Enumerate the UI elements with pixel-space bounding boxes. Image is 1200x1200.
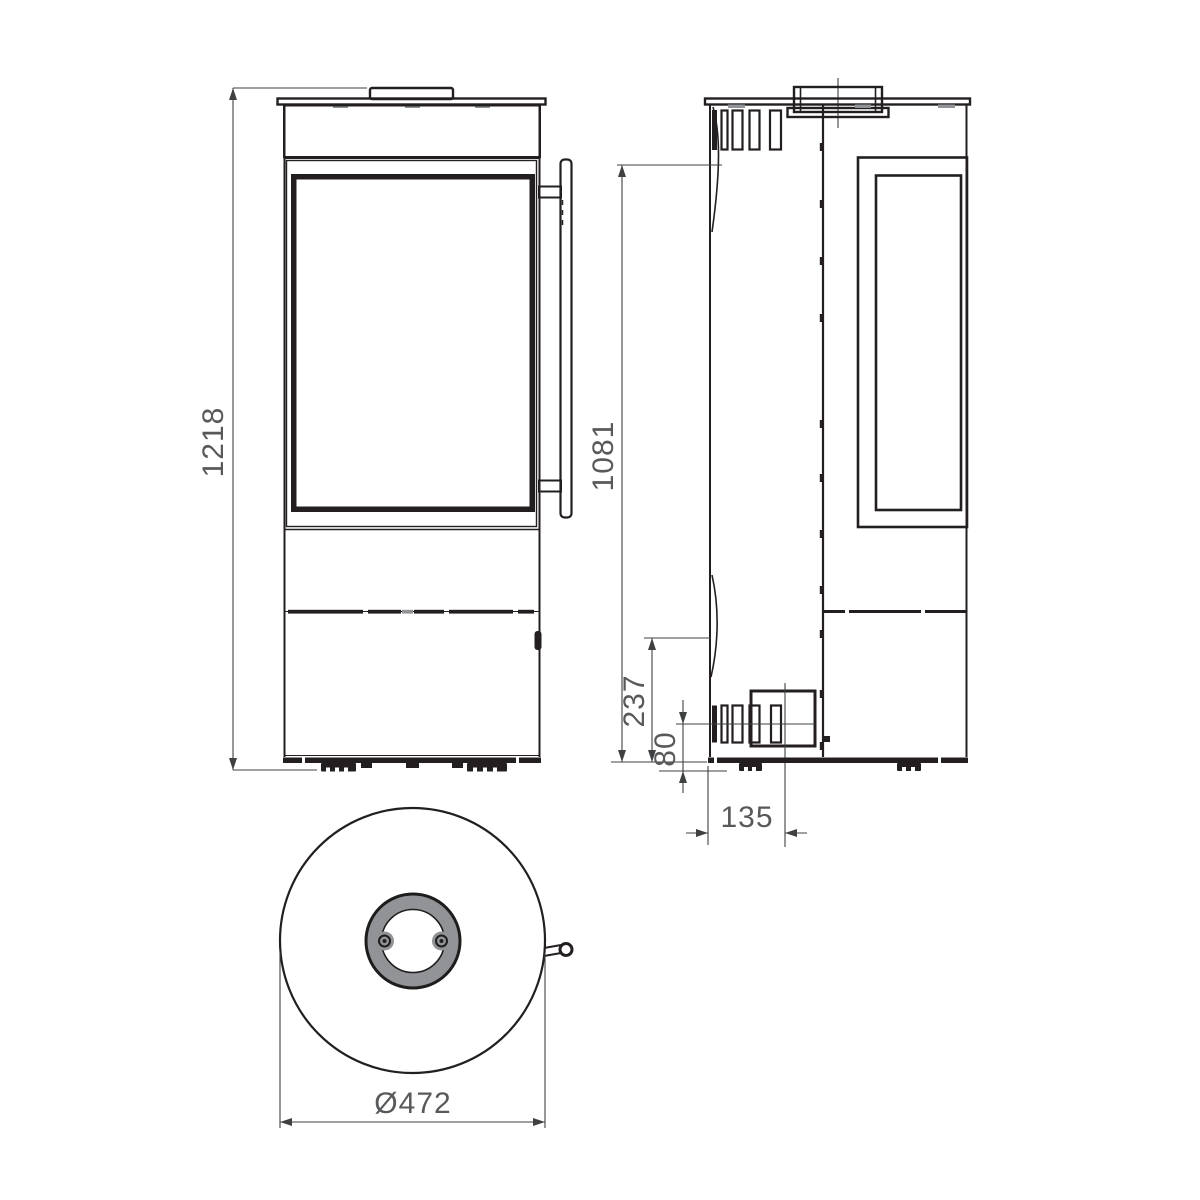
side-window-outer-frame	[858, 158, 967, 528]
label-base-height: 80	[649, 731, 682, 766]
top-view	[280, 808, 572, 1073]
side-window-inner-frame	[876, 176, 961, 511]
front-mid-seam	[284, 610, 540, 614]
side-top-vents	[712, 110, 781, 150]
label-rear-height: 1081	[587, 421, 620, 492]
side-feet	[739, 763, 921, 771]
front-top-band	[284, 106, 540, 158]
label-lower-height: 237	[618, 674, 651, 727]
front-top-plate	[278, 99, 546, 105]
dimension-rear-offset: 135	[686, 766, 807, 845]
front-glass	[297, 180, 530, 507]
label-diameter: Ø472	[374, 1087, 451, 1120]
front-view	[278, 88, 572, 772]
side-front-curve-bottom	[711, 575, 717, 677]
side-view	[676, 78, 970, 847]
technical-drawing: 1218	[0, 0, 1200, 1200]
side-door-seam	[820, 105, 824, 757]
dimension-rear-height: 1081	[587, 165, 722, 762]
front-base-band	[283, 758, 541, 764]
side-base-band	[708, 758, 968, 764]
label-rear-offset: 135	[720, 801, 773, 834]
front-handle-standoff-top	[539, 187, 561, 198]
top-handle	[544, 944, 572, 957]
front-feet	[321, 763, 507, 772]
front-latch-knob	[535, 631, 542, 650]
front-handle-standoff-bottom	[539, 481, 561, 492]
label-overall-height: 1218	[197, 407, 230, 478]
